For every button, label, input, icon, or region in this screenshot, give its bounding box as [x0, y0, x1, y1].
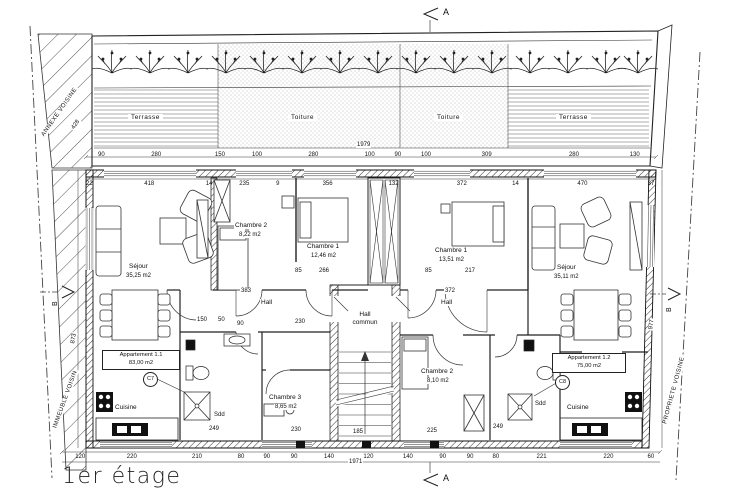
- terrasse-right-label: Terrasse: [556, 114, 591, 121]
- sejour-right-area: 35,11 m2: [553, 274, 580, 280]
- door-marker-c8: C8: [555, 375, 570, 390]
- dimension-value: 130: [615, 152, 654, 158]
- dimension-value: 280: [115, 152, 198, 158]
- staircase: [336, 351, 394, 436]
- chambre2-right-area: 8,10 m2: [426, 378, 450, 384]
- chambre2-left-name: Chambre 2: [234, 222, 268, 229]
- chambre1-right-name: Chambre 1: [434, 247, 468, 254]
- apartment-1-2-name: Appartement 1.2: [555, 355, 623, 363]
- section-a-bottom-label: A: [443, 473, 449, 483]
- dim-85-right: 85: [424, 268, 433, 274]
- terrace-roof-band: [92, 25, 672, 168]
- dim-50: 50: [217, 317, 226, 323]
- dim-249-right: 249: [492, 424, 504, 430]
- dimension-value: 90: [385, 152, 412, 158]
- dimension-value: 90: [429, 454, 456, 460]
- dim-230-bath: 230: [294, 319, 306, 325]
- dimension-value: 372: [411, 181, 512, 187]
- cuisine-left-label: Cuisine: [114, 404, 138, 411]
- dimension-value: 14: [512, 181, 519, 187]
- apartment-1-2-area: 75,00 m2: [555, 363, 623, 371]
- dim-185: 185: [352, 429, 364, 435]
- sheet-title: 1er étage: [62, 464, 181, 489]
- sejour-right-furniture: [532, 195, 642, 340]
- sejour-left-name: Séjour: [128, 263, 149, 270]
- total-top-dim: 1979: [356, 142, 371, 148]
- dim-217: 217: [464, 268, 476, 274]
- terrace-dimension-row: 9028015010028010090100309280130: [88, 152, 654, 158]
- section-b-right-label: B: [666, 307, 673, 312]
- total-bottom-dim: 1971: [348, 459, 363, 465]
- dim-266: 266: [318, 268, 330, 274]
- chambre2-left-area: 8,22 m2: [238, 232, 262, 238]
- hall-left-label: Hall: [260, 299, 273, 306]
- hall-right-label: Hall: [440, 299, 453, 306]
- hall-left-width: 383: [240, 288, 252, 294]
- door-marker-c7: C7: [143, 372, 158, 387]
- dimension-value: 418: [93, 181, 206, 187]
- dimension-value: 309: [441, 152, 533, 158]
- apartment-1-1-box: Appartement 1.1 83,00 m2: [102, 350, 180, 370]
- sdd-right-label: Sdd: [534, 401, 547, 407]
- dimension-value: 220: [98, 454, 165, 460]
- dimension-value: 120: [62, 454, 98, 460]
- dimension-value: 80: [484, 454, 508, 460]
- bedroom-furniture: [214, 180, 504, 431]
- chambre3-left-area: 8,65 m2: [274, 404, 298, 410]
- dimension-value: 22: [86, 181, 93, 187]
- dim-85-left: 85: [294, 268, 303, 274]
- dimension-value: 210: [165, 454, 229, 460]
- dim-230: 230: [290, 427, 302, 433]
- dimension-value: 80: [229, 454, 253, 460]
- dim-150: 150: [196, 317, 208, 323]
- section-a-top-label: A: [443, 7, 449, 17]
- dimension-value: 60: [642, 454, 660, 460]
- chambre1-left-area: 12,46 m2: [310, 253, 337, 259]
- chambre3-left-name: Chambre 3: [268, 394, 302, 401]
- dimension-value: 37: [646, 181, 656, 187]
- sejour-left-area: 35,25 m2: [125, 273, 152, 279]
- dimension-value: 100: [242, 152, 272, 158]
- dimension-value: 132: [376, 181, 412, 187]
- dimension-value: 280: [532, 152, 615, 158]
- chambre1-right-area: 13,51 m2: [438, 257, 465, 263]
- dimension-value: 140: [387, 454, 429, 460]
- apartment-1-1-name: Appartement 1.1: [105, 352, 177, 360]
- bathroom-fixtures: [184, 334, 560, 420]
- dimension-value: 220: [575, 454, 642, 460]
- dimension-value: 90: [253, 454, 280, 460]
- hall-commun-line1: Hall: [340, 311, 390, 319]
- hall-commun-label: Hall commun: [340, 311, 390, 327]
- dimension-value: 14: [206, 181, 213, 187]
- door-arcs: [167, 290, 517, 394]
- dim-90: 90: [236, 321, 245, 327]
- apartment-1-2-box: Appartement 1.2 75,00 m2: [552, 353, 626, 373]
- sdd-left-label: Sdd: [213, 412, 226, 418]
- apartment-1-1-area: 83,00 m2: [105, 360, 177, 368]
- dimension-value: 140: [308, 454, 350, 460]
- dimension-value: 100: [355, 152, 385, 158]
- dimension-value: 235: [212, 181, 276, 187]
- section-b-left-label: B: [52, 301, 59, 306]
- dimension-value: 470: [519, 181, 646, 187]
- room-dimension-row: 224181423593561323721447037: [86, 181, 656, 187]
- dimension-value: 90: [280, 454, 307, 460]
- floor-plan-drawing: [0, 0, 736, 502]
- cuisine-right-label: Cuisine: [566, 404, 590, 411]
- dim-225: 225: [426, 428, 438, 434]
- terrasse-left-label: Terrasse: [128, 114, 163, 121]
- dimension-value: 280: [272, 152, 355, 158]
- toiture-right-label: Toiture: [434, 114, 463, 121]
- dimension-value: 221: [508, 454, 575, 460]
- dimension-value: 90: [456, 454, 483, 460]
- toiture-left-label: Toiture: [288, 114, 317, 121]
- dim-249-left: 249: [208, 426, 220, 432]
- floor-plan-sheet: ANNEXE VOISINE 428 IMMEUBLE VOISIN 873 P…: [0, 0, 736, 502]
- chambre2-right-name: Chambre 2: [420, 368, 454, 375]
- dimension-value: 356: [279, 181, 375, 187]
- hall-right-width: 372: [444, 288, 456, 294]
- sejour-right-name: Séjour: [556, 264, 577, 271]
- dimension-value: 100: [411, 152, 441, 158]
- hall-commun-line2: commun: [340, 319, 390, 327]
- leader-lines: [157, 379, 558, 396]
- dimension-value: 90: [88, 152, 115, 158]
- dimension-value: 150: [198, 152, 242, 158]
- chambre1-left-name: Chambre 1: [306, 243, 340, 250]
